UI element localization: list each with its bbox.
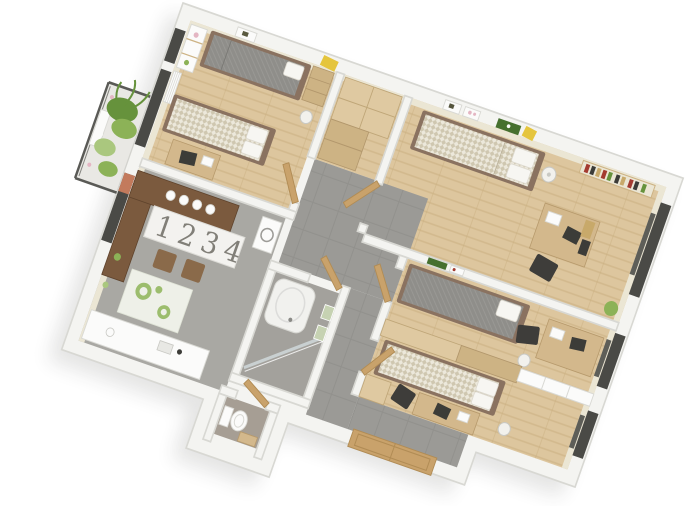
chair-bedroom-3 (516, 325, 541, 346)
apartment-group: 1234 (0, 0, 683, 506)
floor-plan-render: 1234 (0, 0, 700, 506)
floor-plan-canvas: 1234 (0, 0, 700, 506)
